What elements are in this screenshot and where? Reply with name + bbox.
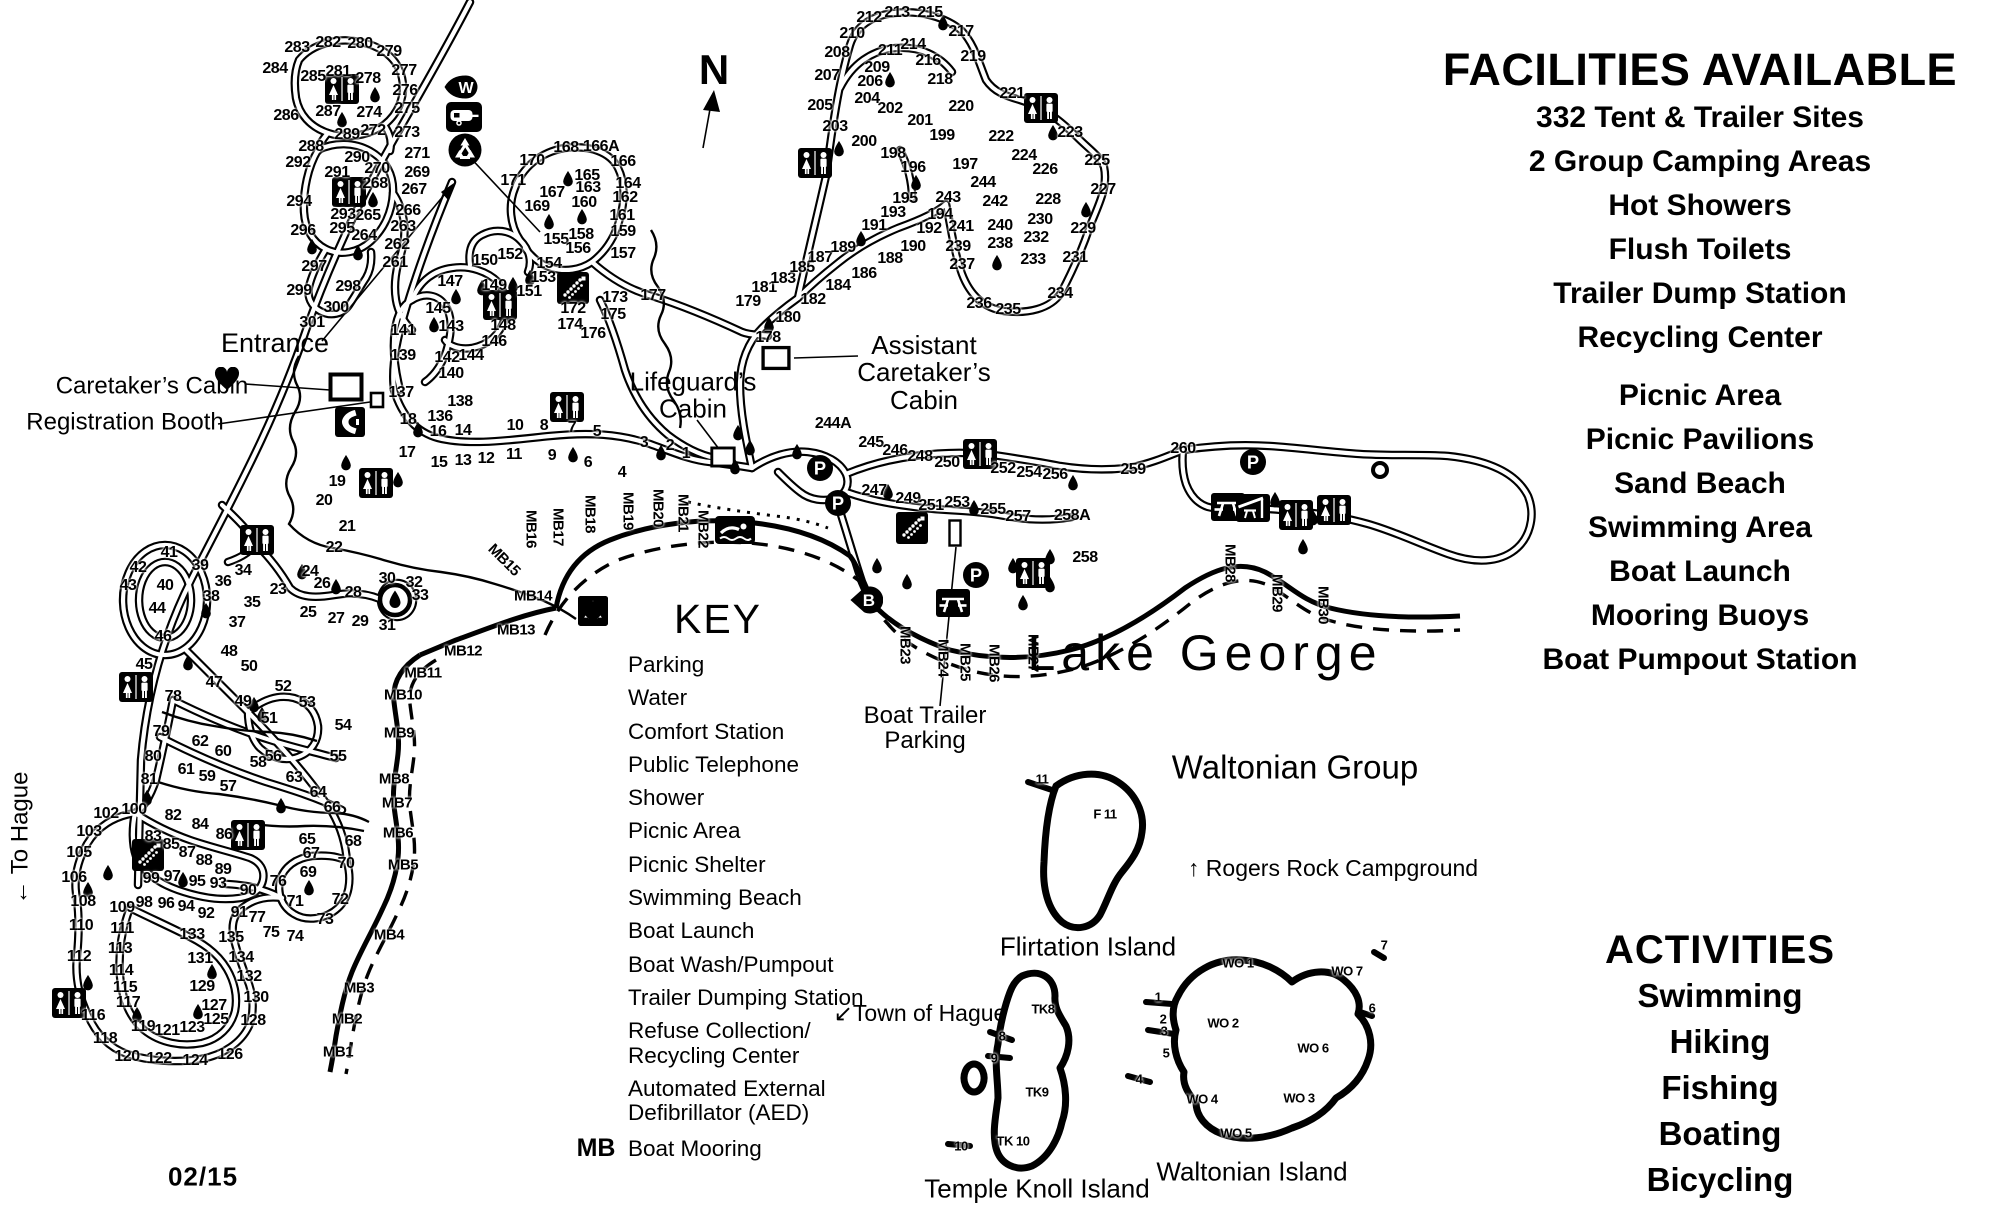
site-number-130: 130	[243, 989, 268, 1007]
site-number-54: 54	[335, 717, 352, 735]
mooring-buoy-MB8: MB8	[379, 771, 409, 788]
site-number-91: 91	[231, 904, 248, 922]
site-number-284: 284	[262, 60, 287, 78]
site-number-7: 7	[568, 419, 576, 437]
site-number-81: 81	[141, 771, 158, 789]
site-number-35: 35	[244, 594, 261, 612]
mooring-buoy-MB22: MB22	[695, 510, 712, 548]
mooring-buoy-MB20: MB20	[650, 489, 667, 527]
mooring-buoy-MB15: MB15	[485, 541, 524, 580]
island-site-11: 11	[1036, 772, 1049, 787]
site-number-56: 56	[265, 748, 282, 766]
key-title: KEY	[638, 596, 798, 643]
site-number-46: 46	[155, 628, 172, 646]
key-item-label: Boat Mooring	[628, 1137, 762, 1161]
site-number-258: 258	[1072, 549, 1097, 567]
site-number-226: 226	[1032, 161, 1057, 179]
site-number-52: 52	[275, 678, 292, 696]
island-site-WO5: WO 5	[1220, 1126, 1251, 1141]
mooring-buoy-MB1: MB1	[323, 1044, 353, 1061]
site-number-41: 41	[161, 544, 178, 562]
site-number-225: 225	[1084, 152, 1109, 170]
site-number-289: 289	[334, 126, 359, 144]
site-number-30: 30	[379, 570, 396, 588]
site-number-197: 197	[952, 156, 977, 174]
site-number-152: 152	[497, 246, 522, 264]
facility-item: Picnic Area	[1400, 374, 2000, 418]
key-item: Swimming Beach	[578, 886, 938, 910]
site-number-182: 182	[800, 291, 825, 309]
site-number-200: 200	[851, 133, 876, 151]
site-number-50: 50	[241, 658, 258, 676]
site-number-92: 92	[198, 905, 215, 923]
site-number-29: 29	[352, 613, 369, 631]
site-number-208: 208	[824, 44, 849, 62]
site-number-116: 116	[81, 1007, 105, 1025]
site-number-297: 297	[301, 258, 326, 276]
site-number-247: 247	[861, 482, 886, 500]
site-number-20: 20	[316, 492, 333, 510]
island-site-WO6: WO 6	[1297, 1041, 1328, 1056]
facilities-list: 332 Tent & Trailer Sites2 Group Camping …	[1400, 96, 2000, 682]
campground-map-page: B W P	[0, 0, 2000, 1206]
entrance-label: Entrance	[221, 329, 329, 357]
site-number-124: 124	[182, 1052, 207, 1070]
site-number-90: 90	[240, 882, 257, 900]
site-number-157: 157	[610, 245, 635, 263]
site-number-55: 55	[330, 748, 347, 766]
site-number-17: 17	[399, 444, 416, 462]
facility-item: Recycling Center	[1400, 316, 2000, 360]
site-number-212: 212	[856, 9, 881, 27]
site-number-148: 148	[490, 317, 515, 335]
site-number-61: 61	[178, 761, 195, 779]
lake-george-label: Lake George	[1027, 627, 1382, 680]
island-site-TK8: TK8	[1031, 1002, 1054, 1017]
site-number-11: 11	[506, 446, 522, 464]
site-number-119: 119	[131, 1018, 155, 1036]
site-number-47: 47	[206, 674, 223, 692]
site-number-149: 149	[481, 277, 506, 295]
activity-item: Boating	[1460, 1111, 1980, 1157]
site-number-93: 93	[210, 875, 227, 893]
site-number-273: 273	[394, 124, 419, 142]
site-number-141: 141	[390, 322, 415, 340]
site-number-244A: 244A	[815, 415, 851, 433]
site-number-265: 265	[355, 207, 380, 225]
site-number-103: 103	[76, 823, 101, 841]
key-item: Water	[578, 686, 938, 710]
site-number-21: 21	[339, 518, 356, 536]
site-number-258A: 258A	[1054, 507, 1090, 525]
facility-item: Sand Beach	[1400, 462, 2000, 506]
island-site-7: 7	[1381, 938, 1388, 953]
site-number-37: 37	[229, 614, 246, 632]
site-number-19: 19	[329, 473, 346, 491]
caretakers-cabin-label: Caretaker’s Cabin	[56, 373, 249, 398]
site-number-285: 285	[300, 68, 325, 86]
site-number-49: 49	[235, 693, 252, 711]
site-number-121: 121	[154, 1022, 179, 1040]
site-number-176: 176	[580, 325, 605, 343]
site-number-43: 43	[120, 577, 137, 595]
site-number-31: 31	[379, 617, 396, 635]
site-number-3: 3	[640, 434, 648, 452]
site-number-10: 10	[507, 417, 524, 435]
site-number-210: 210	[839, 25, 864, 43]
site-number-72: 72	[332, 891, 349, 909]
island-site-TK9: TK9	[1025, 1085, 1048, 1100]
facility-item: Boat Launch	[1400, 550, 2000, 594]
site-number-23: 23	[270, 581, 287, 599]
site-number-222: 222	[988, 128, 1013, 146]
site-number-166A: 166A	[583, 138, 619, 156]
site-number-211: 211	[878, 42, 902, 60]
map-date: 02/15	[168, 1163, 238, 1190]
mooring-buoy-MB21: MB21	[675, 494, 692, 532]
island-site-6: 6	[1369, 1001, 1376, 1016]
site-number-127: 127	[201, 997, 226, 1015]
key-item: Boat Launch	[578, 919, 938, 943]
site-number-87: 87	[179, 844, 196, 862]
north-arrow-label: N	[699, 48, 729, 92]
site-number-203: 203	[822, 118, 847, 136]
site-number-13: 13	[455, 452, 472, 470]
island-site-WO7: WO 7	[1331, 964, 1362, 979]
site-number-252: 252	[990, 460, 1015, 478]
site-number-57: 57	[220, 778, 237, 796]
island-site-10: 10	[954, 1139, 967, 1154]
site-number-5: 5	[593, 423, 601, 441]
site-number-143: 143	[438, 318, 463, 336]
key-rows: ParkingWaterComfort StationPublic Teleph…	[578, 653, 938, 1163]
mooring-buoy-MB9: MB9	[384, 725, 414, 742]
site-number-6: 6	[584, 454, 592, 472]
key-item: Boat Wash/Pumpout	[578, 953, 938, 977]
site-number-137: 137	[388, 384, 413, 402]
mooring-buoy-MB30: MB30	[1315, 586, 1332, 624]
site-number-51: 51	[261, 710, 278, 728]
site-number-66: 66	[324, 799, 341, 817]
site-number-274: 274	[356, 104, 381, 122]
site-number-60: 60	[215, 743, 232, 761]
site-number-298: 298	[335, 278, 360, 296]
site-number-246: 246	[882, 442, 907, 460]
site-number-300: 300	[323, 299, 348, 317]
site-number-144: 144	[458, 347, 483, 365]
mooring-buoy-MB2: MB2	[332, 1011, 362, 1028]
site-number-165: 165	[574, 167, 599, 185]
site-number-261: 261	[382, 254, 407, 272]
site-number-102: 102	[93, 805, 118, 823]
site-number-84: 84	[192, 816, 209, 834]
site-number-271: 271	[404, 145, 429, 163]
site-number-70: 70	[338, 855, 355, 873]
mooring-buoy-MB13: MB13	[497, 622, 535, 639]
site-number-171: 171	[500, 172, 525, 190]
site-number-97: 97	[164, 868, 181, 886]
facility-item: Boat Pumpout Station	[1400, 638, 2000, 682]
site-number-255: 255	[980, 501, 1005, 519]
key-item-label: Boat Launch	[628, 919, 754, 943]
key-item-label: Water	[628, 686, 687, 710]
site-number-277: 277	[391, 62, 416, 80]
site-number-251: 251	[918, 497, 943, 515]
mooring-buoy-MB6: MB6	[383, 825, 413, 842]
island-site-5: 5	[1163, 1046, 1170, 1061]
site-number-138: 138	[447, 393, 472, 411]
activities-list: SwimmingHikingFishingBoatingBicycling	[1460, 973, 1980, 1203]
site-number-236: 236	[966, 295, 991, 313]
site-number-231: 231	[1062, 249, 1087, 267]
activity-item: Bicycling	[1460, 1157, 1980, 1203]
site-number-207: 207	[814, 67, 839, 85]
site-number-294: 294	[286, 193, 311, 211]
site-number-38: 38	[203, 588, 220, 606]
site-number-88: 88	[196, 852, 213, 870]
key-item-label: Picnic Area	[628, 819, 741, 843]
site-number-142: 142	[434, 349, 459, 367]
site-number-108: 108	[70, 893, 95, 911]
island-site-4: 4	[1136, 1072, 1143, 1087]
site-number-219: 219	[960, 48, 985, 66]
mooring-buoy-MB3: MB3	[344, 980, 374, 997]
site-number-286: 286	[273, 107, 298, 125]
facility-item: Flush Toilets	[1400, 228, 2000, 272]
to-hague-label: ← To Hague	[7, 772, 32, 905]
key-item: Refuse Collection/ Recycling Center	[578, 1019, 938, 1068]
waltonian-group-title: Waltonian Group	[1172, 751, 1418, 786]
site-number-132: 132	[236, 968, 261, 986]
temple-knoll-island-label: Temple Knoll Island	[924, 1175, 1149, 1202]
site-number-147: 147	[437, 273, 462, 291]
site-number-79: 79	[153, 723, 170, 741]
site-number-283: 283	[284, 39, 309, 57]
site-number-260: 260	[1170, 440, 1195, 458]
site-number-295: 295	[329, 220, 354, 238]
site-number-62: 62	[192, 733, 209, 751]
mooring-buoy-MB28: MB28	[1222, 544, 1239, 582]
site-number-195: 195	[892, 190, 917, 208]
site-number-14: 14	[455, 422, 472, 440]
site-number-296: 296	[290, 222, 315, 240]
key-item-label: Boat Wash/Pumpout	[628, 953, 834, 977]
activity-item: Swimming	[1460, 973, 1980, 1019]
site-number-267: 267	[401, 181, 426, 199]
site-number-276: 276	[392, 82, 417, 100]
site-number-73: 73	[317, 911, 334, 929]
key-item-label: Automated External Defibrillator (AED)	[628, 1077, 826, 1126]
site-number-120: 120	[114, 1048, 139, 1066]
site-number-63: 63	[286, 769, 303, 787]
site-number-110: 110	[69, 917, 93, 935]
site-number-243: 243	[935, 189, 960, 207]
site-number-178: 178	[755, 329, 780, 347]
site-number-188: 188	[877, 250, 902, 268]
mooring-buoy-MB18: MB18	[582, 495, 599, 533]
site-number-39: 39	[192, 557, 209, 575]
site-number-94: 94	[178, 898, 195, 916]
site-number-15: 15	[431, 454, 448, 472]
site-number-241: 241	[948, 218, 973, 236]
site-number-278: 278	[355, 70, 380, 88]
site-number-240: 240	[987, 217, 1012, 235]
registration-booth-label: Registration Booth	[26, 409, 223, 434]
mb-icon: MB	[578, 1134, 614, 1163]
site-number-282: 282	[315, 34, 340, 52]
site-number-99: 99	[143, 870, 160, 888]
island-site-1: 1	[1155, 990, 1162, 1005]
site-number-269: 269	[404, 164, 429, 182]
site-number-112: 112	[67, 948, 91, 966]
lifeguards-cabin-label: Lifeguard’s Cabin	[630, 369, 757, 424]
key-item-label: Comfort Station	[628, 720, 784, 744]
site-number-159: 159	[610, 223, 635, 241]
site-number-250: 250	[934, 454, 959, 472]
mooring-buoy-MB29: MB29	[1269, 574, 1286, 612]
site-number-215: 215	[917, 4, 942, 22]
site-number-205: 205	[807, 97, 832, 115]
site-number-45: 45	[136, 656, 153, 674]
mooring-buoy-MB19: MB19	[620, 492, 637, 530]
key-item-label: Picnic Shelter	[628, 853, 766, 877]
site-number-175: 175	[600, 306, 625, 324]
site-number-230: 230	[1027, 211, 1052, 229]
mooring-buoy-MB5: MB5	[388, 857, 418, 874]
site-number-8: 8	[540, 417, 548, 435]
site-number-280: 280	[347, 35, 372, 53]
site-number-266: 266	[395, 202, 420, 220]
site-number-2: 2	[666, 437, 674, 455]
site-number-237: 237	[949, 256, 974, 274]
site-number-279: 279	[376, 43, 401, 61]
site-number-117: 117	[116, 994, 140, 1012]
facility-item: Swimming Area	[1400, 506, 2000, 550]
site-number-189: 189	[830, 239, 855, 257]
site-number-292: 292	[285, 154, 310, 172]
site-number-140: 140	[438, 365, 463, 383]
site-number-158: 158	[568, 226, 593, 244]
key-item: Shower	[578, 786, 938, 810]
site-number-133: 133	[179, 926, 204, 944]
site-number-42: 42	[130, 559, 147, 577]
site-number-145: 145	[425, 300, 450, 318]
key-item-label: Parking	[628, 653, 704, 677]
key-item-label: Refuse Collection/ Recycling Center	[628, 1019, 811, 1068]
island-site-3: 3	[1161, 1024, 1168, 1039]
mooring-buoy-MB10: MB10	[384, 687, 422, 704]
site-number-253: 253	[944, 494, 969, 512]
island-site-TK10: TK 10	[997, 1134, 1030, 1149]
facility-item: 332 Tent & Trailer Sites	[1400, 96, 2000, 140]
site-number-67: 67	[303, 845, 320, 863]
site-number-232: 232	[1023, 229, 1048, 247]
site-number-299: 299	[286, 282, 311, 300]
site-number-204: 204	[854, 90, 879, 108]
site-number-249: 249	[895, 490, 920, 508]
site-number-85: 85	[163, 836, 180, 854]
site-number-242: 242	[982, 193, 1007, 211]
activity-item: Hiking	[1460, 1019, 1980, 1065]
site-number-248: 248	[907, 448, 932, 466]
site-number-201: 201	[907, 112, 932, 130]
site-number-83: 83	[145, 828, 162, 846]
site-number-82: 82	[165, 807, 182, 825]
site-number-34: 34	[235, 562, 252, 580]
site-number-164: 164	[615, 175, 640, 193]
facility-item: 2 Group Camping Areas	[1400, 140, 2000, 184]
mooring-buoy-MB7: MB7	[382, 795, 412, 812]
site-number-291: 291	[324, 164, 349, 182]
key-item: Automated External Defibrillator (AED)	[578, 1077, 938, 1126]
site-number-254: 254	[1016, 464, 1041, 482]
site-number-262: 262	[384, 236, 409, 254]
facility-item: Hot Showers	[1400, 184, 2000, 228]
mooring-buoy-MB16: MB16	[523, 510, 540, 548]
key-item-label: Swimming Beach	[628, 886, 802, 910]
site-number-244: 244	[970, 174, 995, 192]
site-number-76: 76	[270, 873, 287, 891]
site-number-170: 170	[519, 152, 544, 170]
waltonian-island-label: Waltonian Island	[1156, 1158, 1347, 1185]
site-number-28: 28	[345, 584, 362, 602]
site-number-229: 229	[1070, 220, 1095, 238]
map-key: KEY ParkingWaterComfort StationPublic Te…	[578, 596, 938, 1172]
site-number-58: 58	[250, 754, 267, 772]
mooring-buoy-MB17: MB17	[550, 508, 567, 546]
site-number-18: 18	[400, 411, 417, 429]
site-number-80: 80	[145, 748, 162, 766]
site-number-86: 86	[216, 826, 233, 844]
island-site-WO2: WO 2	[1207, 1016, 1238, 1031]
rogers-rock-campground-label: ↑ Rogers Rock Campground	[1188, 856, 1478, 880]
site-number-106: 106	[61, 869, 86, 887]
site-number-220: 220	[948, 98, 973, 116]
site-number-257: 257	[1005, 508, 1030, 526]
site-number-44: 44	[149, 600, 166, 618]
site-number-123: 123	[179, 1019, 204, 1037]
site-number-22: 22	[326, 539, 343, 557]
site-number-146: 146	[481, 333, 506, 351]
site-number-275: 275	[394, 100, 419, 118]
site-number-96: 96	[158, 895, 175, 913]
key-item-label: Shower	[628, 786, 704, 810]
site-number-134: 134	[228, 949, 253, 967]
site-number-27: 27	[328, 610, 345, 628]
key-item: MBBoat Mooring	[578, 1134, 938, 1163]
site-number-128: 128	[240, 1012, 265, 1030]
key-item-label: Public Telephone	[628, 753, 799, 777]
island-site-8: 8	[999, 1029, 1006, 1044]
mooring-buoy-MB26: MB26	[986, 644, 1003, 682]
key-item-label: Trailer Dumping Station	[628, 986, 864, 1010]
site-number-122: 122	[146, 1050, 171, 1068]
mooring-buoy-MB12: MB12	[444, 643, 482, 660]
site-number-238: 238	[987, 235, 1012, 253]
site-number-126: 126	[217, 1046, 242, 1064]
site-number-199: 199	[929, 127, 954, 145]
site-number-239: 239	[945, 238, 970, 256]
site-number-154: 154	[536, 255, 561, 273]
site-number-150: 150	[472, 252, 497, 270]
facility-item: Trailer Dump Station	[1400, 272, 2000, 316]
site-number-235: 235	[995, 301, 1020, 319]
site-number-227: 227	[1090, 181, 1115, 199]
mooring-buoy-MB14: MB14	[514, 588, 552, 605]
site-number-218: 218	[927, 71, 952, 89]
mooring-buoy-MB25: MB25	[957, 643, 974, 681]
site-number-129: 129	[189, 978, 214, 996]
